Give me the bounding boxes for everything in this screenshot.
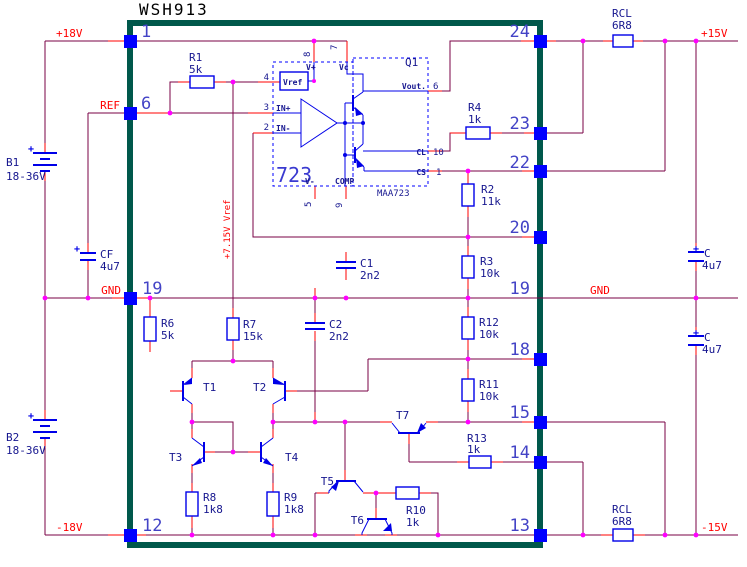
label-t5: T5 [321, 475, 334, 488]
schematic-page: WSH913 1 6 19 12 24 23 22 20 19 18 15 14… [0, 0, 747, 567]
label-cs: CS [416, 168, 426, 177]
net-ref: REF [100, 99, 120, 112]
pin-label-24: 24 [510, 22, 530, 42]
transistor-t6 [362, 519, 392, 535]
pin-label-14: 14 [510, 443, 530, 463]
capacitor-c2 [305, 323, 325, 329]
label-b2-plus: + [28, 411, 34, 422]
label-c1-val: 2n2 [360, 269, 380, 282]
label-r8-val: 1k8 [203, 503, 223, 516]
pin-6 [124, 107, 137, 120]
label-icpin-4: 4 [264, 73, 269, 83]
label-b1-val: 18-36V [6, 170, 46, 183]
label-c2-val: 2n2 [329, 330, 349, 343]
resistor-r3 [462, 256, 474, 278]
label-vc: Vc [339, 63, 349, 72]
resistor-r7 [227, 318, 239, 340]
page-title: WSH913 [139, 0, 209, 19]
label-b1-ref: B1 [6, 156, 19, 169]
resistor-r4 [466, 127, 490, 139]
label-icpin-6: 6 [433, 82, 438, 92]
net-vref-rail: +7.15V Vref [223, 199, 233, 259]
pin-23 [534, 127, 547, 140]
transistor-t7 [392, 423, 426, 433]
opamp-symbol [301, 99, 337, 147]
transistor-t3 [192, 438, 204, 466]
label-icpin-1: 1 [436, 168, 441, 178]
capacitor-cf [80, 253, 96, 260]
pin-19-left [124, 292, 137, 305]
resistor-r9 [267, 492, 279, 516]
label-r7-val: 15k [243, 330, 263, 343]
label-r9-val: 1k8 [284, 503, 304, 516]
pin-label-20: 20 [510, 218, 530, 238]
net-minus15v: -15V [701, 521, 728, 534]
label-rclt-val: 6R8 [612, 19, 632, 32]
net-plus15v: +15V [701, 27, 728, 40]
transistor-t1 [183, 378, 192, 404]
label-icpin-10: 10 [433, 148, 444, 158]
label-comp: COMP [335, 177, 354, 186]
label-r1-val: 5k [189, 63, 203, 76]
label-r6-val: 5k [161, 329, 175, 342]
label-in-plus: IN+ [276, 104, 291, 113]
circuit-schematic: WSH913 1 6 19 12 24 23 22 20 19 18 15 14… [0, 0, 747, 567]
label-vplus: V+ [306, 63, 316, 72]
label-cbot-val: 4u7 [702, 343, 722, 356]
pin-label-1: 1 [141, 22, 151, 42]
pin-14 [534, 456, 547, 469]
pin-15 [534, 416, 547, 429]
label-r4-val: 1k [468, 113, 482, 126]
pin-12 [124, 529, 137, 542]
label-b2-val: 18-36V [6, 444, 46, 457]
label-t1: T1 [203, 381, 216, 394]
resistor-rcl-top [613, 35, 633, 47]
label-icpin-8: 8 [303, 52, 313, 57]
label-vminus: V- [305, 177, 315, 186]
label-r2-val: 11k [481, 195, 501, 208]
label-vref-block: Vref [283, 78, 302, 87]
pin-label-19-right: 19 [510, 279, 530, 299]
resistor-r1 [190, 76, 214, 88]
label-in-minus: IN- [276, 124, 290, 133]
label-q1: Q1 [405, 56, 418, 69]
label-t3: T3 [169, 451, 182, 464]
label-b2-ref: B2 [6, 431, 19, 444]
label-r3-val: 10k [480, 267, 500, 280]
label-t2: T2 [253, 381, 266, 394]
label-icpin-5: 5 [304, 202, 314, 207]
resistor-r10 [396, 487, 419, 499]
pin-label-19-left: 19 [142, 279, 162, 299]
label-vout: Vout. [402, 82, 426, 91]
label-cf-val: 4u7 [100, 260, 120, 273]
label-r12-val: 10k [479, 328, 499, 341]
label-t6: T6 [351, 514, 364, 527]
pin-24 [534, 35, 547, 48]
pin-22 [534, 165, 547, 178]
net-minus18v: -18V [56, 521, 83, 534]
transistor-t5 [329, 481, 363, 493]
label-cl: CL [416, 148, 426, 157]
label-icpin-2: 2 [264, 123, 269, 133]
resistor-bodies [144, 35, 633, 541]
label-rclb-val: 6R8 [612, 515, 632, 528]
label-icpin-7: 7 [330, 45, 340, 50]
transistor-t4 [261, 438, 273, 466]
pin-label-18: 18 [510, 340, 530, 360]
pin-18 [534, 353, 547, 366]
net-gnd-right: GND [590, 284, 610, 297]
label-icpin-9: 9 [335, 203, 345, 208]
resistor-rcl-bottom [613, 529, 633, 541]
transistor-t2 [273, 378, 285, 404]
pin-label-12: 12 [142, 516, 162, 536]
resistor-r6 [144, 317, 156, 341]
label-r11-val: 10k [479, 390, 499, 403]
net-gnd-left: GND [101, 284, 121, 297]
resistor-r8 [186, 492, 198, 516]
pin-20 [534, 231, 547, 244]
pin-label-22: 22 [510, 153, 530, 173]
capacitor-c1 [336, 262, 356, 268]
battery-b2 [33, 420, 57, 438]
label-icpin-3: 3 [264, 103, 269, 113]
label-t7: T7 [396, 409, 409, 422]
pin-13 [534, 529, 547, 542]
pin-label-15: 15 [510, 403, 530, 423]
label-r13-val: 1k [467, 443, 481, 456]
label-maa723: MAA723 [377, 189, 410, 199]
label-b1-plus: + [28, 144, 34, 155]
label-r10-val: 1k [406, 516, 420, 529]
pin-label-23: 23 [510, 114, 530, 134]
pin-label-6: 6 [141, 94, 151, 114]
label-ctop-val: 4u7 [702, 259, 722, 272]
resistor-r13 [469, 456, 491, 468]
resistor-r11 [462, 379, 474, 401]
resistor-r12 [462, 317, 474, 339]
label-cbot-plus: + [693, 328, 699, 339]
label-cf-plus: + [74, 244, 80, 255]
pin-label-13: 13 [510, 516, 530, 536]
pin-1 [124, 35, 137, 48]
net-plus18v: +18V [56, 27, 83, 40]
label-t4: T4 [285, 451, 299, 464]
label-ctop-plus: + [693, 244, 699, 255]
resistor-r2 [462, 184, 474, 206]
battery-b1 [33, 153, 57, 171]
